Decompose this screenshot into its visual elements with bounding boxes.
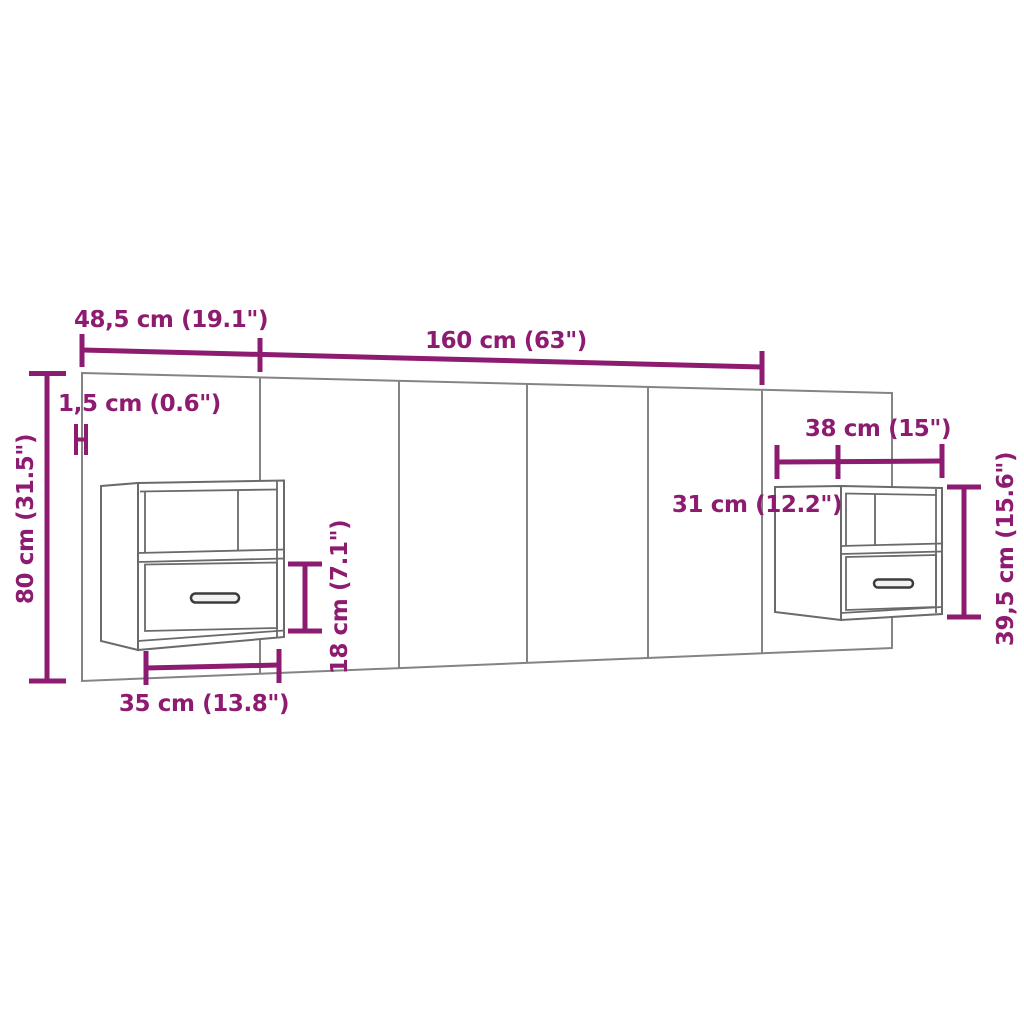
dim-label-headboard-height: 80 cm (31.5"): [13, 434, 39, 604]
dim-label-drawer-height: 18 cm (7.1"): [327, 520, 353, 675]
dim-label-right-cabinet-width: 38 cm (15"): [805, 416, 951, 442]
dim-line-left-cabinet-width: [146, 665, 279, 668]
dim-label-center-width: 160 cm (63"): [425, 328, 587, 354]
dim-line-right-cabinet-width: [777, 461, 942, 462]
dim-label-right-cabinet-height: 39,5 cm (15.6"): [993, 452, 1019, 646]
right-cabinet-drawer-handle: [874, 580, 913, 588]
dim-label-left-cabinet-width: 35 cm (13.8"): [119, 691, 289, 717]
headboard-dimension-diagram: 48,5 cm (19.1") 160 cm (63") 1,5 cm (0.6…: [0, 0, 1024, 1024]
dim-label-left-section-width: 48,5 cm (19.1"): [74, 307, 268, 333]
dim-line-top-width: [82, 350, 762, 367]
left-cabinet-front: [138, 481, 284, 651]
dim-label-panel-thickness: 1,5 cm (0.6"): [58, 391, 221, 417]
dim-label-right-cabinet-depth: 31 cm (12.2"): [672, 492, 842, 518]
left-cabinet-drawer-handle: [191, 594, 239, 603]
left-cabinet-side-panel: [101, 483, 138, 650]
left-bedside-cabinet: [101, 481, 284, 651]
